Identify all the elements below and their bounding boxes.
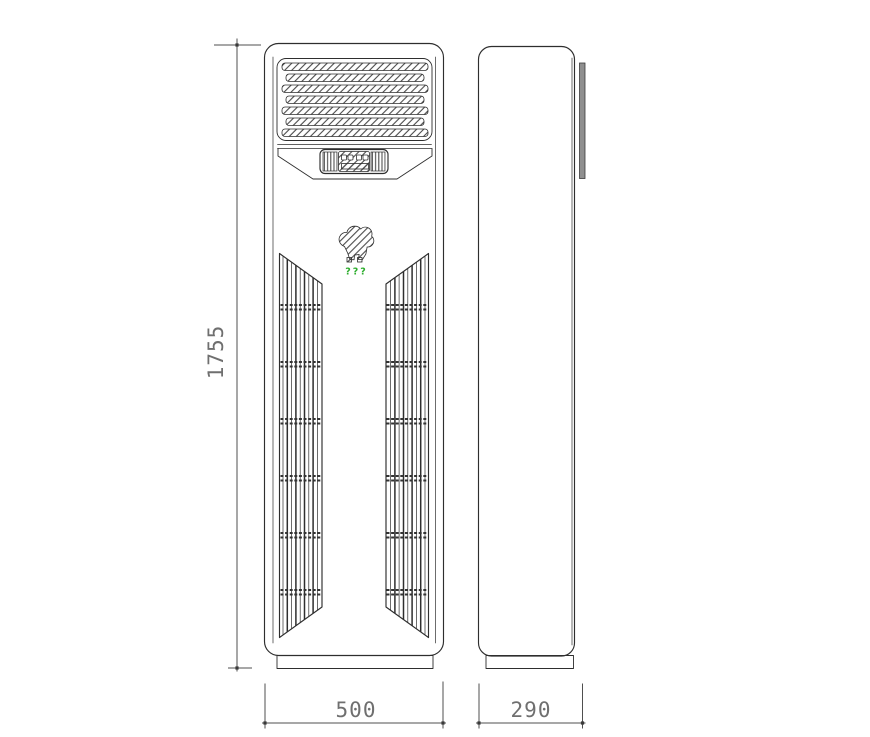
grille-slat xyxy=(286,118,424,126)
grille-slat xyxy=(282,85,428,93)
right-louver-panel xyxy=(386,250,429,640)
side-view xyxy=(479,47,586,669)
grille-slat xyxy=(282,63,428,71)
grille-slat xyxy=(286,74,424,82)
dimension-tick xyxy=(235,43,238,46)
depth-dimension: 290 xyxy=(476,684,586,729)
front-view: ??? xyxy=(265,44,444,669)
logo-caption: ??? xyxy=(345,267,368,278)
dimension-tick xyxy=(441,721,444,724)
side-base-plinth xyxy=(486,656,574,669)
width-dimension-label: 500 xyxy=(336,698,377,722)
height-dimension: 1755 xyxy=(204,39,261,672)
width-dimension: 500 xyxy=(262,682,446,729)
recess-top-lines xyxy=(278,145,432,149)
display-digit xyxy=(348,155,353,160)
vent-cap-right-icon xyxy=(371,152,385,171)
depth-dimension-label: 290 xyxy=(511,698,552,722)
logo-foot-icon xyxy=(358,258,363,263)
vent-cap-left-icon xyxy=(323,152,337,171)
cad-drawing-canvas: ??? xyxy=(0,0,870,737)
display-digit xyxy=(363,155,368,160)
dimension-tick xyxy=(263,721,266,724)
logo-foot-icon xyxy=(347,258,352,263)
height-dimension-label: 1755 xyxy=(204,325,228,380)
display-digit xyxy=(357,155,362,160)
grille-slat xyxy=(286,96,424,104)
grille-slat xyxy=(282,107,428,115)
dimension-tick xyxy=(581,721,584,724)
dimension-tick xyxy=(477,721,480,724)
dimension-tick xyxy=(235,666,238,669)
control-panel xyxy=(320,150,388,174)
grille-slat xyxy=(282,129,428,137)
brand-logo-icon xyxy=(339,226,374,260)
left-louver-panel xyxy=(280,250,323,640)
brand-logo: ??? xyxy=(339,226,374,277)
display-digit xyxy=(342,155,347,160)
right-louver-outline xyxy=(386,254,429,638)
ac-unit-elevation-drawing: ??? xyxy=(0,0,870,737)
display-indicator-bar xyxy=(342,164,369,170)
front-body-seam-lines xyxy=(273,57,436,643)
side-body-outline xyxy=(479,47,575,657)
left-louver-outline xyxy=(280,254,323,638)
front-base-plinth xyxy=(277,656,433,669)
air-outlet-grille xyxy=(277,59,432,141)
side-handle-strip xyxy=(580,63,586,179)
